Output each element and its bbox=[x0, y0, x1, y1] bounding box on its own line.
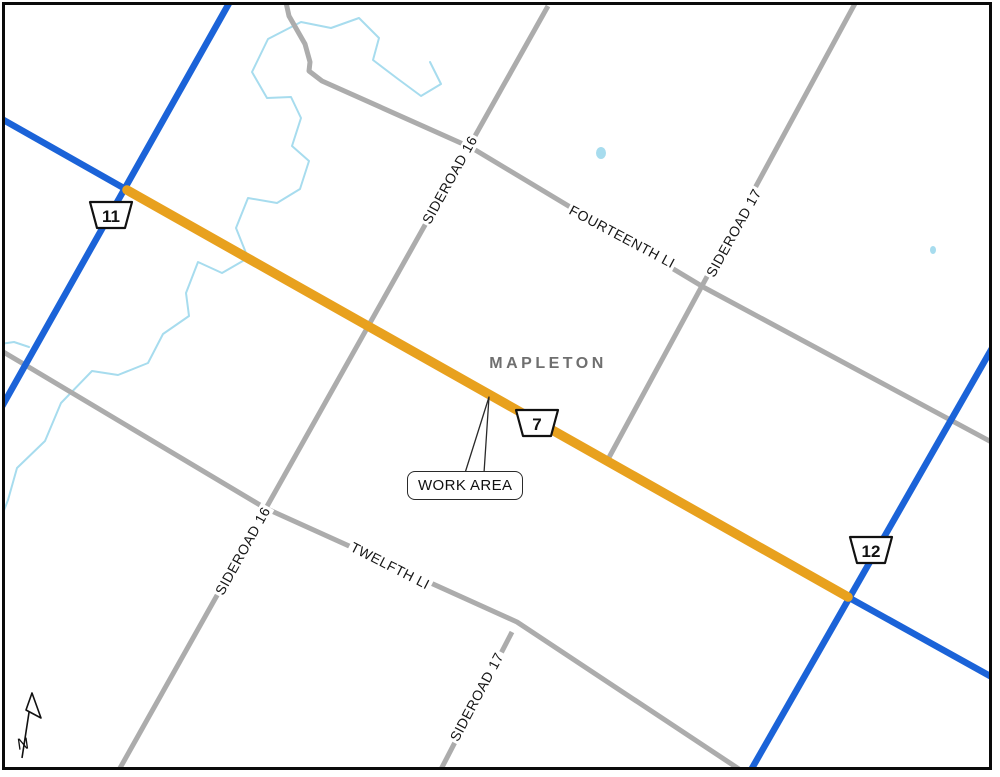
river-stub bbox=[2, 342, 29, 347]
river-main bbox=[3, 18, 441, 513]
pond-small bbox=[596, 147, 606, 159]
highway-shield-7-number: 7 bbox=[532, 415, 541, 434]
pond-tiny bbox=[930, 246, 936, 254]
highway-shield-11: 11 bbox=[88, 199, 134, 231]
highway-7-east bbox=[846, 596, 992, 681]
highway-shield-12: 12 bbox=[848, 534, 894, 566]
region-label-mapleton: MAPLETON bbox=[489, 355, 606, 373]
map-canvas: N SIDEROAD 16 FOURTEENTH LI SIDEROAD 17 … bbox=[2, 2, 992, 770]
highway-7-west bbox=[2, 118, 129, 191]
work-area-segment bbox=[127, 190, 848, 597]
highway-shield-7: 7 bbox=[514, 407, 560, 439]
work-area-callout: WORK AREA bbox=[407, 471, 523, 500]
river bbox=[2, 18, 936, 513]
road-fourteenth-line bbox=[285, 2, 992, 445]
work-area-leader bbox=[465, 397, 489, 473]
north-arrow-letter: N bbox=[16, 735, 30, 753]
north-arrow: N bbox=[16, 693, 41, 758]
map-inner: N SIDEROAD 16 FOURTEENTH LI SIDEROAD 17 … bbox=[2, 2, 992, 770]
highway-shield-12-number: 12 bbox=[862, 542, 881, 561]
highway-shield-11-number: 11 bbox=[102, 207, 120, 226]
